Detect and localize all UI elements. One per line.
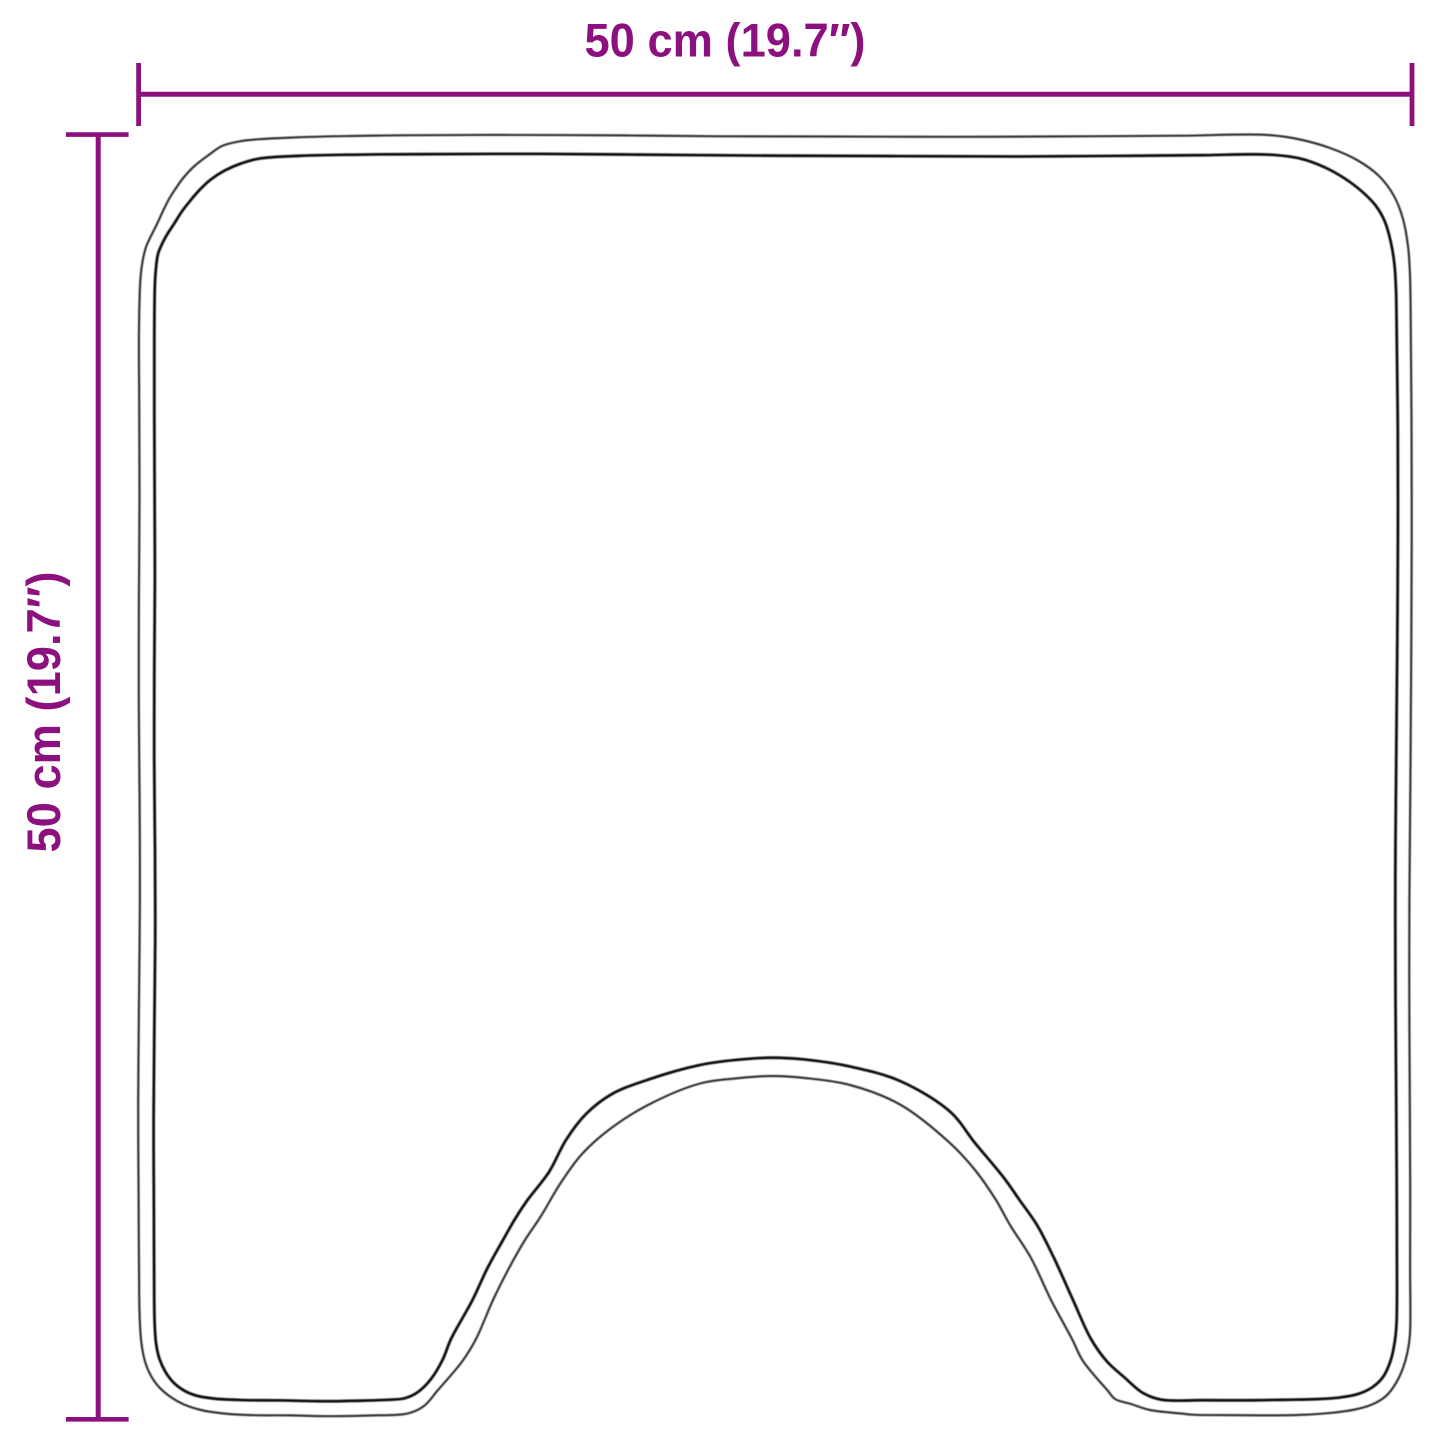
- svg-text:50 cm (19.7″): 50 cm (19.7″): [585, 14, 866, 67]
- svg-text:50 cm (19.7″): 50 cm (19.7″): [17, 572, 70, 853]
